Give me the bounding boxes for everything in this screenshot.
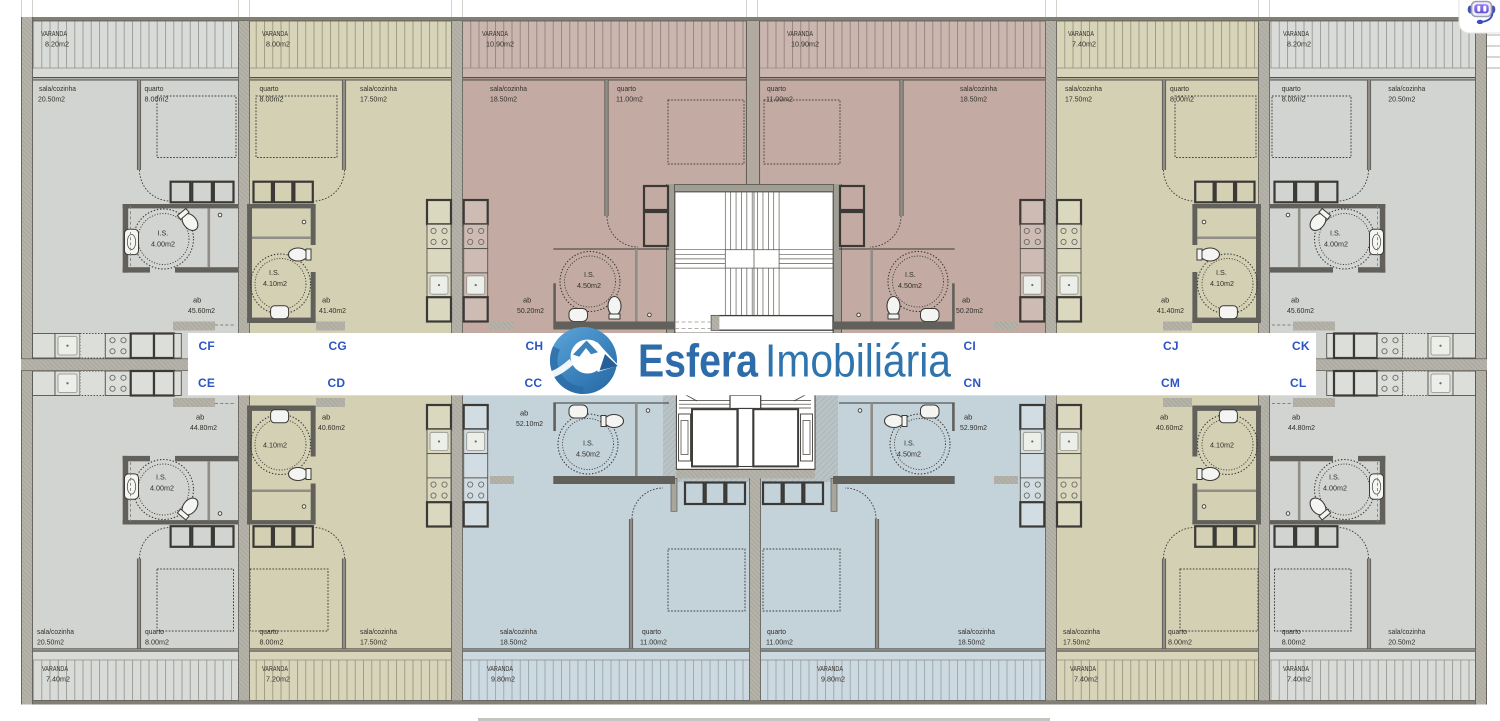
svg-text:9.80m2: 9.80m2 <box>821 675 845 684</box>
svg-text:CF: CF <box>199 339 215 353</box>
svg-text:50.20m2: 50.20m2 <box>956 306 983 315</box>
svg-text:11.00m2: 11.00m2 <box>640 638 667 647</box>
svg-text:quarto: quarto <box>1168 627 1187 636</box>
svg-text:CL: CL <box>1290 376 1306 390</box>
svg-text:8.00m2: 8.00m2 <box>1282 95 1306 104</box>
svg-text:sala/cozinha: sala/cozinha <box>1065 84 1103 93</box>
svg-text:CJ: CJ <box>1163 339 1179 353</box>
svg-text:ab: ab <box>1160 413 1168 422</box>
svg-text:7.40m2: 7.40m2 <box>1287 675 1311 684</box>
svg-text:CD: CD <box>328 376 346 390</box>
svg-text:4.50m2: 4.50m2 <box>577 281 601 290</box>
svg-text:sala/cozinha: sala/cozinha <box>490 84 528 93</box>
svg-text:4.00m2: 4.00m2 <box>151 240 175 249</box>
svg-text:ab: ab <box>964 413 972 422</box>
svg-text:41.40m2: 41.40m2 <box>319 306 346 315</box>
svg-text:Esfera: Esfera <box>638 335 759 387</box>
svg-text:sala/cozinha: sala/cozinha <box>1063 627 1101 636</box>
svg-text:CC: CC <box>525 376 543 390</box>
svg-text:4.00m2: 4.00m2 <box>1324 240 1348 249</box>
svg-text:40.60m2: 40.60m2 <box>318 423 345 432</box>
svg-text:8.00m2: 8.00m2 <box>1282 638 1306 647</box>
svg-text:quarto: quarto <box>145 84 164 93</box>
svg-text:18.50m2: 18.50m2 <box>958 638 985 647</box>
svg-text:VARANDA: VARANDA <box>1283 29 1309 38</box>
svg-text:11.00m2: 11.00m2 <box>766 638 793 647</box>
svg-text:I.S.: I.S. <box>1216 268 1227 277</box>
svg-text:8.00m2: 8.00m2 <box>145 638 169 647</box>
svg-text:20.50m2: 20.50m2 <box>37 638 64 647</box>
svg-text:44.80m2: 44.80m2 <box>1288 423 1315 432</box>
svg-text:11.00m2: 11.00m2 <box>766 95 793 104</box>
svg-text:sala/cozinha: sala/cozinha <box>960 84 998 93</box>
svg-text:I.S.: I.S. <box>904 439 915 448</box>
svg-text:20.50m2: 20.50m2 <box>1388 638 1415 647</box>
svg-text:7.20m2: 7.20m2 <box>266 675 290 684</box>
svg-text:45.60m2: 45.60m2 <box>1287 306 1314 315</box>
svg-text:I.S.: I.S. <box>905 270 916 279</box>
svg-text:sala/cozinha: sala/cozinha <box>1388 627 1426 636</box>
svg-text:4.10m2: 4.10m2 <box>1210 441 1234 450</box>
svg-text:ab: ab <box>193 296 201 305</box>
svg-text:17.50m2: 17.50m2 <box>360 638 387 647</box>
svg-text:I.S.: I.S. <box>156 473 167 482</box>
svg-text:sala/cozinha: sala/cozinha <box>1388 84 1426 93</box>
svg-text:quarto: quarto <box>1170 84 1189 93</box>
svg-text:I.S.: I.S. <box>269 268 280 277</box>
svg-text:ab: ab <box>1291 296 1299 305</box>
svg-text:quarto: quarto <box>617 84 636 93</box>
svg-text:CI: CI <box>964 339 976 353</box>
svg-text:52.90m2: 52.90m2 <box>960 423 987 432</box>
svg-text:quarto: quarto <box>260 84 279 93</box>
svg-text:17.50m2: 17.50m2 <box>360 95 387 104</box>
svg-text:CK: CK <box>1292 339 1310 353</box>
svg-text:20.50m2: 20.50m2 <box>1388 95 1415 104</box>
svg-text:17.50m2: 17.50m2 <box>1065 95 1092 104</box>
svg-text:I.S.: I.S. <box>584 270 595 279</box>
svg-text:8.20m2: 8.20m2 <box>1287 40 1311 49</box>
svg-text:ab: ab <box>322 296 330 305</box>
svg-text:4.50m2: 4.50m2 <box>898 281 922 290</box>
svg-text:7.40m2: 7.40m2 <box>1072 40 1096 49</box>
svg-text:4.50m2: 4.50m2 <box>897 450 921 459</box>
svg-text:VARANDA: VARANDA <box>1070 664 1096 673</box>
svg-text:44.80m2: 44.80m2 <box>190 423 217 432</box>
svg-text:4.10m2: 4.10m2 <box>263 279 287 288</box>
svg-text:VARANDA: VARANDA <box>1068 29 1094 38</box>
svg-text:VARANDA: VARANDA <box>262 29 288 38</box>
svg-text:VARANDA: VARANDA <box>1283 664 1309 673</box>
svg-text:41.40m2: 41.40m2 <box>1157 306 1184 315</box>
svg-text:VARANDA: VARANDA <box>487 664 513 673</box>
svg-text:Imobiliária: Imobiliária <box>765 335 951 387</box>
svg-text:quarto: quarto <box>1282 627 1301 636</box>
svg-text:45.60m2: 45.60m2 <box>188 306 215 315</box>
svg-text:17.50m2: 17.50m2 <box>1063 638 1090 647</box>
svg-text:8.00m2: 8.00m2 <box>260 95 284 104</box>
svg-text:quarto: quarto <box>260 627 279 636</box>
svg-text:I.S.: I.S. <box>1329 473 1340 482</box>
svg-text:sala/cozinha: sala/cozinha <box>500 627 538 636</box>
svg-text:ab: ab <box>962 296 970 305</box>
svg-text:I.S.: I.S. <box>158 229 169 238</box>
svg-text:7.40m2: 7.40m2 <box>46 675 70 684</box>
svg-text:CN: CN <box>964 376 982 390</box>
svg-text:ab: ab <box>520 409 528 418</box>
svg-text:VARANDA: VARANDA <box>42 664 68 673</box>
svg-text:8.00m2: 8.00m2 <box>1168 638 1192 647</box>
svg-text:50.20m2: 50.20m2 <box>517 306 544 315</box>
svg-text:ab: ab <box>196 413 204 422</box>
svg-text:18.50m2: 18.50m2 <box>960 95 987 104</box>
svg-text:4.00m2: 4.00m2 <box>150 484 174 493</box>
svg-text:CG: CG <box>329 339 347 353</box>
svg-text:8.00m2: 8.00m2 <box>266 40 290 49</box>
svg-text:8.00m2: 8.00m2 <box>260 638 284 647</box>
svg-text:52.10m2: 52.10m2 <box>516 419 543 428</box>
svg-text:VARANDA: VARANDA <box>262 664 288 673</box>
svg-text:ab: ab <box>523 296 531 305</box>
svg-text:7.40m2: 7.40m2 <box>1074 675 1098 684</box>
svg-text:quarto: quarto <box>767 627 786 636</box>
svg-text:11.00m2: 11.00m2 <box>616 95 643 104</box>
svg-text:VARANDA: VARANDA <box>787 29 813 38</box>
svg-text:sala/cozinha: sala/cozinha <box>360 84 398 93</box>
svg-text:I.S.: I.S. <box>583 439 594 448</box>
svg-text:sala/cozinha: sala/cozinha <box>360 627 398 636</box>
svg-text:I.S.: I.S. <box>1330 229 1341 238</box>
svg-text:18.50m2: 18.50m2 <box>500 638 527 647</box>
svg-text:4.50m2: 4.50m2 <box>576 450 600 459</box>
svg-text:40.60m2: 40.60m2 <box>1156 423 1183 432</box>
svg-text:20.50m2: 20.50m2 <box>38 95 65 104</box>
svg-text:CH: CH <box>526 339 544 353</box>
svg-text:4.00m2: 4.00m2 <box>1323 484 1347 493</box>
svg-text:VARANDA: VARANDA <box>817 664 843 673</box>
svg-text:quarto: quarto <box>767 84 786 93</box>
svg-text:sala/cozinha: sala/cozinha <box>39 84 77 93</box>
svg-text:sala/cozinha: sala/cozinha <box>958 627 996 636</box>
svg-text:4.10m2: 4.10m2 <box>263 441 287 450</box>
svg-text:VARANDA: VARANDA <box>41 29 67 38</box>
svg-text:10.90m2: 10.90m2 <box>486 40 514 49</box>
svg-text:sala/cozinha: sala/cozinha <box>37 627 75 636</box>
svg-text:quarto: quarto <box>145 627 164 636</box>
svg-text:4.10m2: 4.10m2 <box>1210 279 1234 288</box>
svg-text:10.90m2: 10.90m2 <box>791 40 819 49</box>
svg-text:quarto: quarto <box>1282 84 1301 93</box>
svg-text:VARANDA: VARANDA <box>482 29 508 38</box>
svg-text:ab: ab <box>322 413 330 422</box>
svg-text:8.20m2: 8.20m2 <box>45 40 69 49</box>
svg-text:8.00m2: 8.00m2 <box>145 95 169 104</box>
svg-text:CM: CM <box>1161 376 1180 390</box>
svg-text:CE: CE <box>198 376 215 390</box>
svg-text:quarto: quarto <box>642 627 661 636</box>
svg-text:8.00m2: 8.00m2 <box>1170 95 1194 104</box>
svg-text:ab: ab <box>1161 296 1169 305</box>
svg-text:9.80m2: 9.80m2 <box>491 675 515 684</box>
svg-text:18.50m2: 18.50m2 <box>490 95 517 104</box>
svg-text:ab: ab <box>1292 413 1300 422</box>
